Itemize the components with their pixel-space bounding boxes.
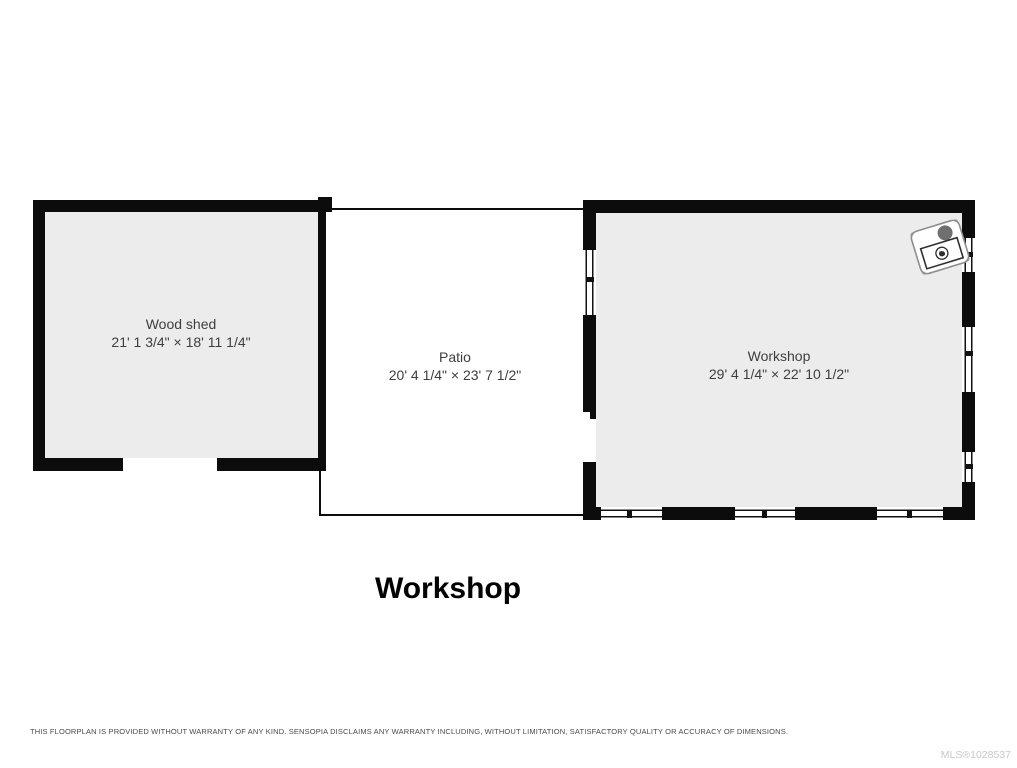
workshop-wall-south-seg3	[795, 507, 877, 520]
room-dimensions: 21' 1 3/4" × 18' 11 1/4"	[111, 333, 250, 351]
room-label-wood-shed: Wood shed 21' 1 3/4" × 18' 11 1/4"	[111, 315, 250, 351]
room-name: Workshop	[709, 347, 849, 365]
window-mullion	[762, 510, 767, 518]
workshop-south-window-1	[601, 507, 662, 520]
room-name: Patio	[389, 348, 521, 366]
workshop-east-window-2	[962, 327, 975, 392]
workshop-east-window-3	[962, 452, 975, 482]
workshop-wall-south-seg4	[943, 507, 975, 520]
workshop-west-window	[583, 250, 596, 315]
patio-wall-left	[319, 470, 321, 516]
window-mullion	[586, 277, 594, 282]
room-label-patio: Patio 20' 4 1/4" × 23' 7 1/2"	[389, 348, 521, 384]
patio-wall-top	[330, 208, 583, 210]
wood-stove-icon	[905, 212, 975, 282]
disclaimer-text: THIS FLOORPLAN IS PROVIDED WITHOUT WARRA…	[30, 727, 788, 736]
floorplan-canvas: Wood shed 21' 1 3/4" × 18' 11 1/4" Patio…	[0, 0, 1017, 768]
window-mullion	[965, 464, 973, 469]
wood-shed-wall-bottom-right	[217, 458, 326, 471]
plan-title: Workshop	[375, 572, 521, 606]
room-dimensions: 29' 4 1/4" × 22' 10 1/2"	[709, 365, 849, 383]
workshop-wall-west-seg1	[583, 213, 596, 250]
window-mullion	[965, 351, 973, 356]
wood-shed-wall-right	[318, 200, 326, 471]
window-mullion	[907, 510, 912, 518]
wood-shed-wall-bottom-left	[33, 458, 123, 471]
wood-shed-wall-left	[33, 200, 45, 471]
workshop-south-window-3	[877, 507, 943, 520]
room-label-workshop: Workshop 29' 4 1/4" × 22' 10 1/2"	[709, 347, 849, 383]
mls-number: MLS®1028537	[941, 749, 1011, 761]
wood-shed-wall-top	[33, 200, 332, 212]
room-name: Wood shed	[111, 315, 250, 333]
window-mullion	[627, 510, 632, 518]
workshop-wall-south-seg1	[583, 507, 601, 520]
workshop-wall-east-seg3	[962, 392, 975, 452]
room-dimensions: 20' 4 1/4" × 23' 7 1/2"	[389, 366, 521, 384]
workshop-wall-west-seg2	[583, 315, 596, 412]
workshop-west-door-jamb	[590, 412, 596, 419]
workshop-south-window-2	[735, 507, 795, 520]
patio-wall-bottom	[319, 514, 585, 516]
workshop-wall-south-seg2	[662, 507, 735, 520]
